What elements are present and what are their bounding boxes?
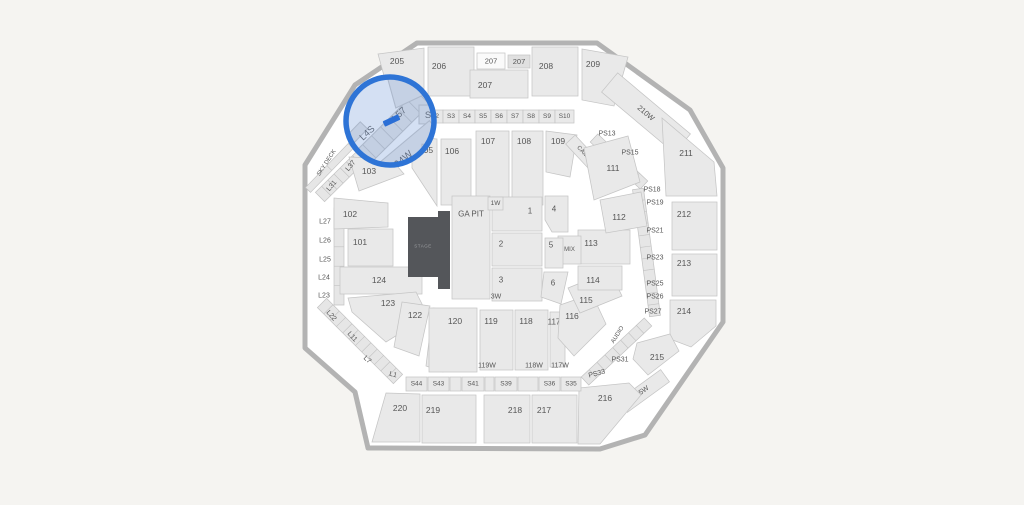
section-2[interactable]: 2 (492, 233, 542, 266)
section-120[interactable]: 120 (429, 308, 477, 372)
section-blank-68[interactable] (518, 377, 538, 391)
section-blank-64[interactable] (450, 377, 461, 391)
section-s39[interactable]: S39 (495, 377, 517, 391)
section-s44[interactable]: S44 (406, 377, 427, 391)
section-106[interactable]: 106 (441, 139, 471, 205)
section-102[interactable]: 102 (334, 198, 388, 229)
section-208[interactable]: 208 (532, 47, 578, 96)
section-s5[interactable]: S5 (475, 110, 491, 123)
section-119[interactable]: 119 (480, 310, 513, 370)
section-217[interactable]: 217 (532, 395, 577, 443)
section-207[interactable]: 207 (470, 70, 528, 98)
section-4[interactable]: 4 (545, 196, 568, 232)
section-108[interactable]: 108 (512, 131, 543, 205)
seating-map: 205206207207207208209210WS1S2S3S4S5S6S7S… (0, 0, 1024, 500)
section-s10[interactable]: S10 (555, 110, 574, 123)
section-s9[interactable]: S9 (539, 110, 555, 123)
section-s4[interactable]: S4 (459, 110, 475, 123)
section-s43[interactable]: S43 (428, 377, 449, 391)
section-113[interactable]: 113 (578, 230, 630, 264)
section-206[interactable]: 206 (428, 47, 474, 96)
section-207[interactable]: 207 (477, 53, 505, 69)
section-101[interactable]: 101 (348, 229, 393, 266)
section-213[interactable]: 213 (672, 254, 717, 296)
section-212[interactable]: 212 (672, 202, 717, 250)
section-1w[interactable]: 1W (488, 197, 503, 210)
section-s35[interactable]: S35 (561, 377, 581, 391)
section-ga-pit[interactable]: GA PIT (452, 196, 490, 299)
section-s41[interactable]: S41 (462, 377, 484, 391)
section-207[interactable]: 207 (508, 55, 530, 68)
section-118[interactable]: 118 (515, 310, 548, 370)
section-s7[interactable]: S7 (507, 110, 523, 123)
section-107[interactable]: 107 (476, 131, 509, 205)
section-114[interactable]: 114 (578, 266, 622, 290)
section-s6[interactable]: S6 (491, 110, 507, 123)
seating-map-svg[interactable]: 205206207207207208209210WS1S2S3S4S5S6S7S… (0, 0, 1024, 500)
section-s3[interactable]: S3 (443, 110, 459, 123)
section-blank-66[interactable] (485, 377, 494, 391)
section-219[interactable]: 219 (422, 395, 476, 443)
section-s36[interactable]: S36 (539, 377, 560, 391)
section-5[interactable]: 5 (545, 238, 563, 268)
section-s8[interactable]: S8 (523, 110, 539, 123)
section-218[interactable]: 218 (484, 395, 530, 443)
section-3[interactable]: 3 (492, 268, 542, 301)
